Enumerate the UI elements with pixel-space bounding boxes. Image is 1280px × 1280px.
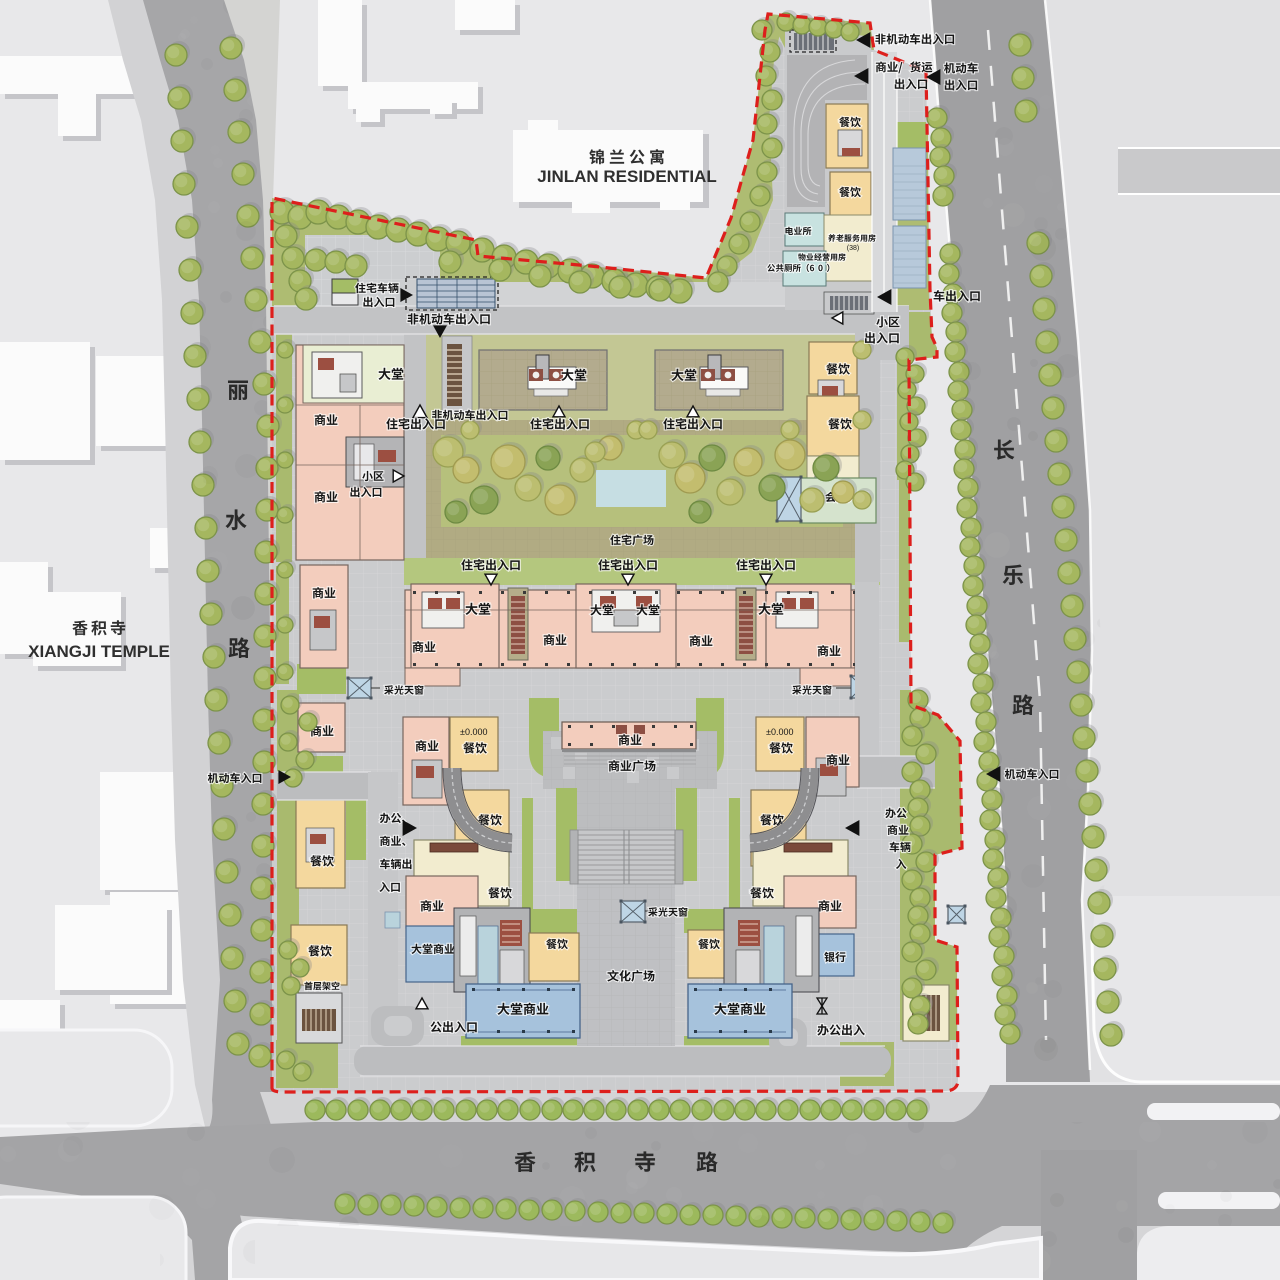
svg-text:XIANGJI TEMPLE: XIANGJI TEMPLE <box>28 642 170 661</box>
svg-text:±0.000: ±0.000 <box>460 727 487 737</box>
svg-text:(38): (38) <box>847 245 859 252</box>
svg-text:±0.000: ±0.000 <box>766 727 793 737</box>
svg-text:JINLAN RESIDENTIAL: JINLAN RESIDENTIAL <box>537 167 716 186</box>
